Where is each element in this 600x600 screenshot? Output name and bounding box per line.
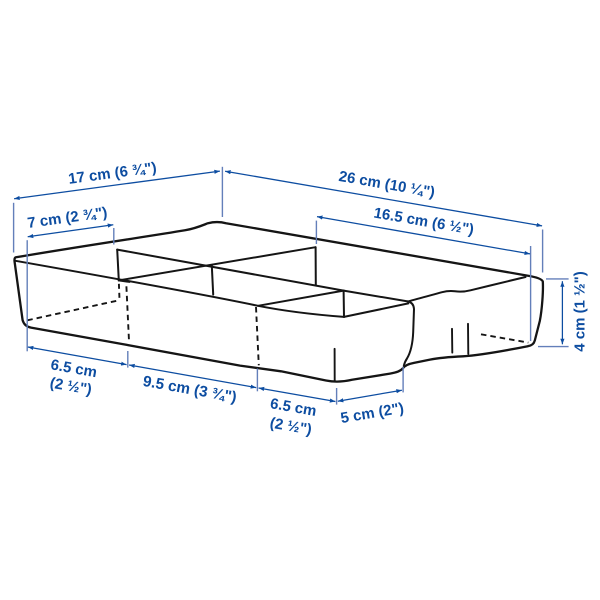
svg-text:4 cm (1 ½"): 4 cm (1 ½") xyxy=(572,271,589,351)
